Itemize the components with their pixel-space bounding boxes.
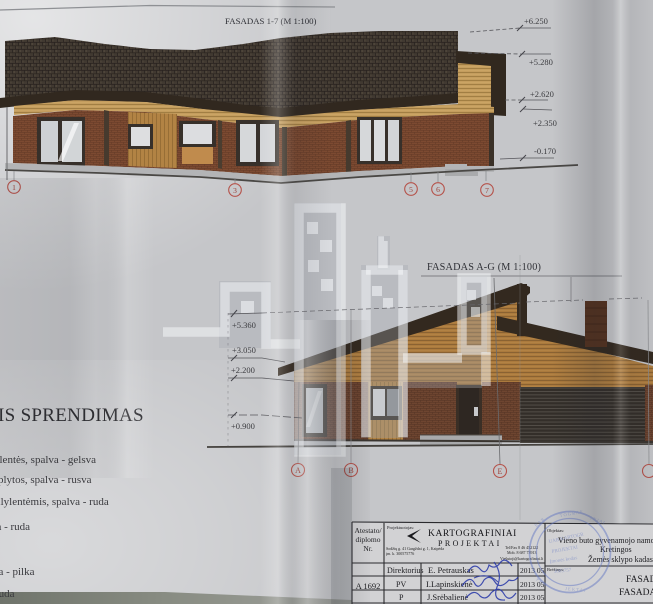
svg-text:Žemės sklypo kadastri: Žemės sklypo kadastri [588,554,653,564]
svg-text:Kretingos: Kretingos [600,545,632,554]
svg-text:ruda: ruda [0,588,15,600]
svg-text:+5.360: +5.360 [232,320,256,330]
svg-text:alva - pilka: alva - pilka [0,566,35,578]
svg-text:+0.900: +0.900 [231,421,255,431]
svg-text:I.Lapinskienė: I.Lapinskienė [426,579,473,589]
svg-text:Mob. 8 687 73913: Mob. 8 687 73913 [507,550,537,555]
svg-text:E: E [498,467,503,476]
svg-text:+3.050: +3.050 [232,345,256,355]
svg-text:E. Petrauskas: E. Petrauskas [428,565,474,575]
svg-text:+2.620: +2.620 [530,89,554,99]
svg-text:6: 6 [436,185,440,194]
svg-text:FASADA: FASADA [626,575,653,585]
svg-text:įm. k. 300575776: įm. k. 300575776 [386,551,414,556]
svg-text:tinėmis dailylentėmis, spalva: tinėmis dailylentėmis, spalva - ruda [0,496,109,508]
svg-text:J.Srėbalienė: J.Srėbalienė [427,592,469,602]
svg-text:KARTOGRAFINIAI: KARTOGRAFINIAI [428,529,517,539]
svg-text:7: 7 [485,186,489,195]
svg-text:PV: PV [396,580,406,589]
svg-text:+6.250: +6.250 [524,16,548,26]
svg-text:PROJEKTAI: PROJEKTAI [438,539,502,548]
svg-text:Objektas:: Objektas: [547,528,564,533]
svg-text:+2.200: +2.200 [231,365,255,375]
svg-text:+5.280: +5.280 [529,57,553,67]
svg-text:Projektuotojas:: Projektuotojas: [387,525,414,530]
svg-text:FASADAS A-G (M 1:100): FASADAS A-G (M 1:100) [427,262,541,273]
svg-text:FASADA: FASADA [619,588,653,598]
svg-text:Direktorius: Direktorius [387,566,423,575]
svg-text:2013 05: 2013 05 [520,593,545,602]
svg-text:alva - ruda: alva - ruda [0,521,30,533]
svg-text:3: 3 [233,186,237,195]
svg-text:P: P [399,593,404,602]
svg-text:5: 5 [409,185,413,194]
